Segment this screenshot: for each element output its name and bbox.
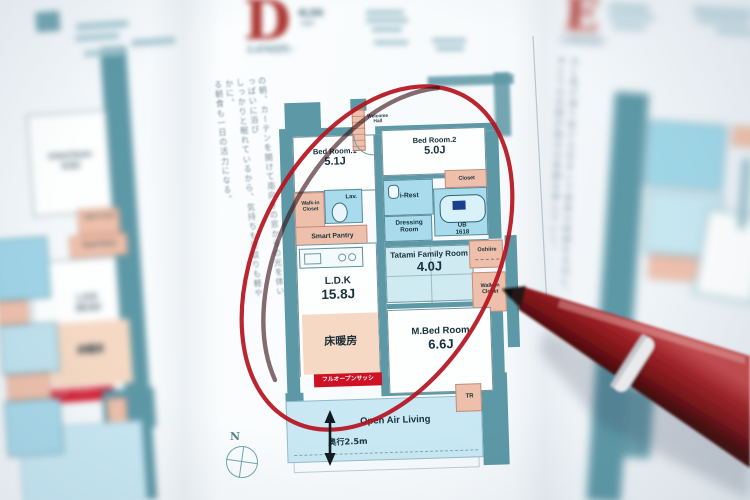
red-pen [0, 0, 750, 500]
brochure-photo: M.Bed Room 6.5J Walk-in Closet Smart Pan… [0, 0, 750, 500]
